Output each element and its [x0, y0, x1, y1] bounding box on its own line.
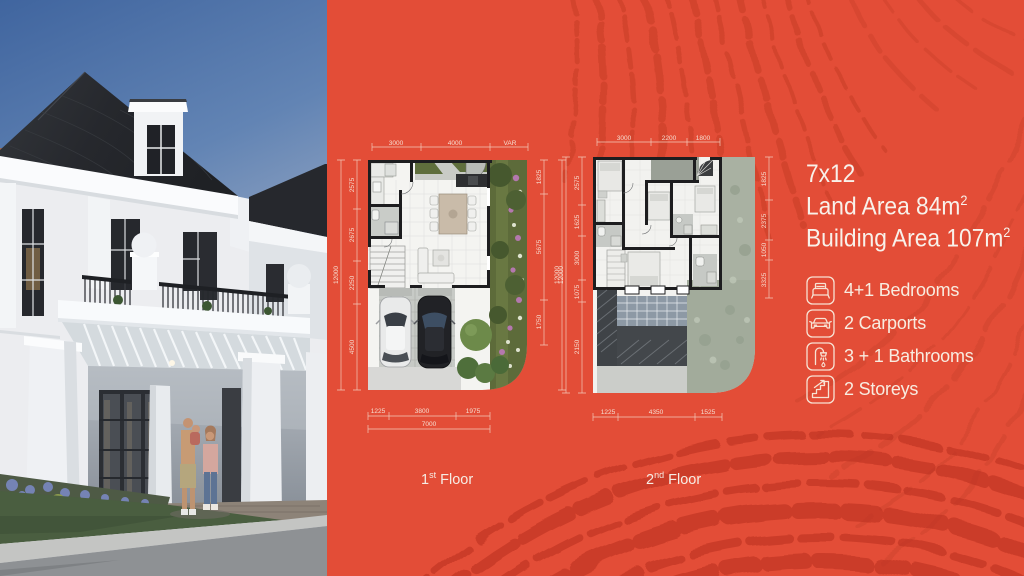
- svg-text:4500: 4500: [349, 339, 356, 354]
- svg-text:1825: 1825: [761, 171, 768, 186]
- svg-text:2200: 2200: [662, 135, 677, 142]
- svg-text:4350: 4350: [649, 409, 664, 416]
- svg-text:2150: 2150: [574, 339, 581, 354]
- svg-text:2375: 2375: [761, 213, 768, 228]
- svg-text:2575: 2575: [574, 175, 581, 190]
- svg-text:3000: 3000: [617, 135, 632, 142]
- svg-text:1825: 1825: [536, 169, 543, 184]
- svg-text:1800: 1800: [696, 135, 711, 142]
- svg-text:3000: 3000: [389, 140, 404, 147]
- svg-text:3000: 3000: [574, 250, 581, 265]
- svg-text:1225: 1225: [371, 408, 386, 415]
- svg-text:12000: 12000: [333, 266, 340, 284]
- svg-text:2250: 2250: [349, 275, 356, 290]
- svg-text:1525: 1525: [701, 409, 716, 416]
- svg-text:3325: 3325: [761, 272, 768, 287]
- svg-text:VAR: VAR: [504, 140, 517, 147]
- svg-text:1050: 1050: [761, 242, 768, 257]
- svg-text:12000: 12000: [558, 266, 565, 284]
- svg-text:2575: 2575: [349, 177, 356, 192]
- svg-text:7000: 7000: [422, 421, 437, 428]
- svg-text:1750: 1750: [536, 314, 543, 329]
- svg-text:1075: 1075: [574, 284, 581, 299]
- svg-text:1225: 1225: [601, 409, 616, 416]
- svg-text:1625: 1625: [574, 214, 581, 229]
- svg-text:2675: 2675: [349, 227, 356, 242]
- svg-text:5675: 5675: [536, 239, 543, 254]
- svg-text:1975: 1975: [466, 408, 481, 415]
- svg-text:4000: 4000: [448, 140, 463, 147]
- svg-text:3800: 3800: [415, 408, 430, 415]
